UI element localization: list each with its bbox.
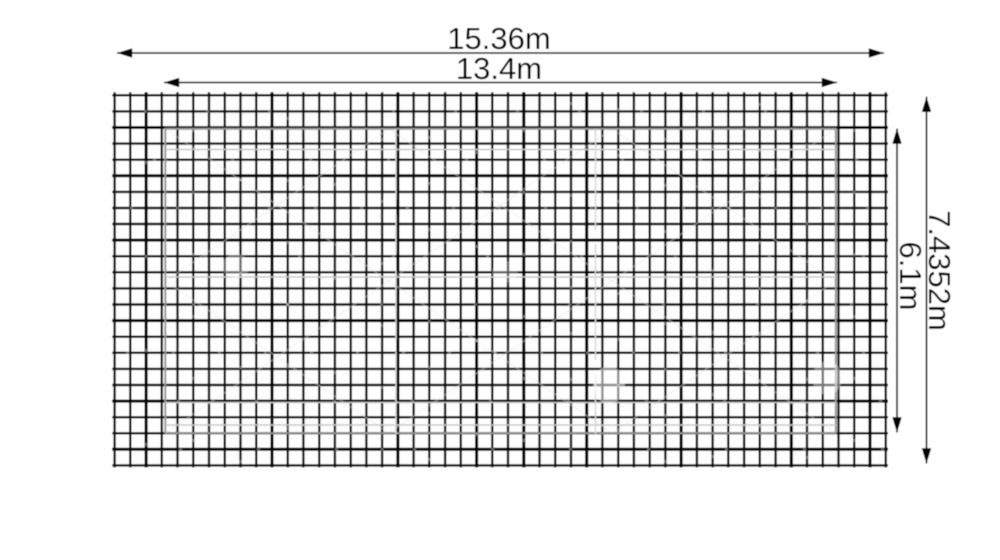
- svg-text:13.4m: 13.4m: [456, 51, 542, 86]
- svg-text:7.4352m: 7.4352m: [922, 210, 957, 331]
